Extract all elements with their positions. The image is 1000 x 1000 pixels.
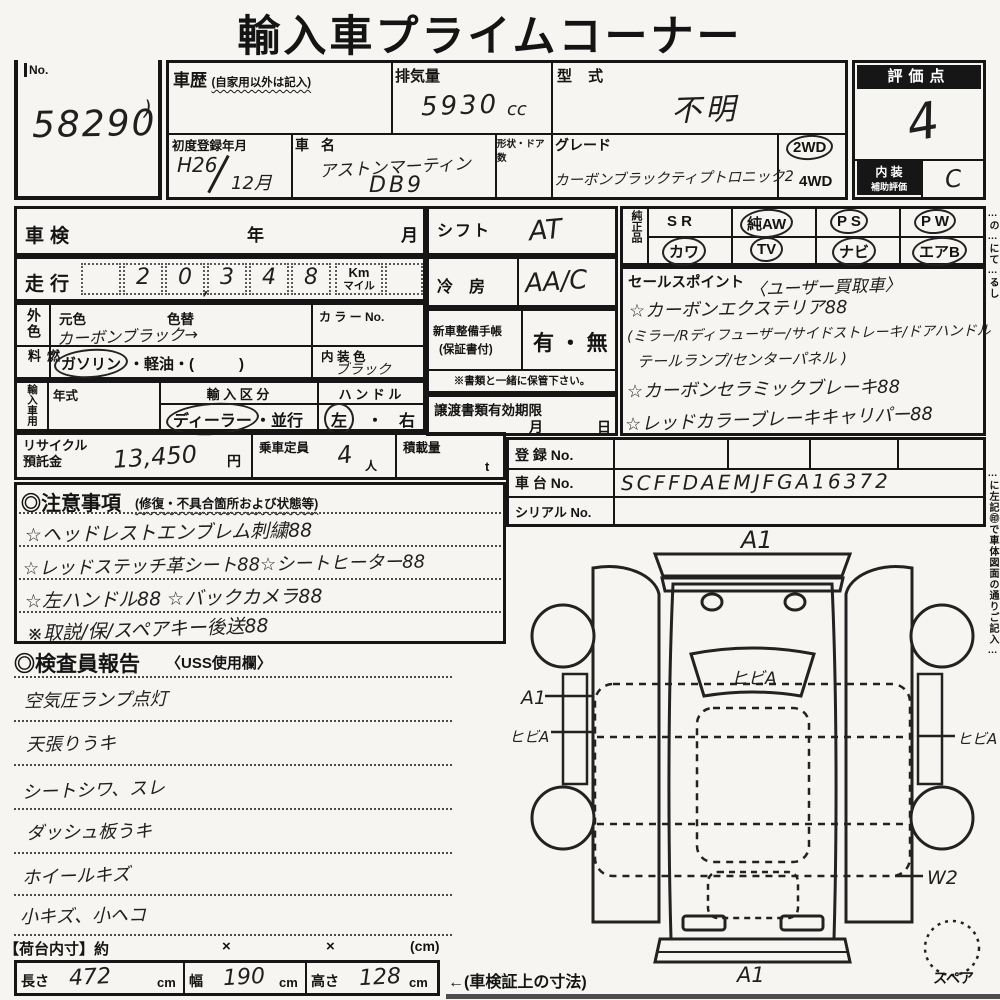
diagram-w2-mark: W2	[927, 867, 958, 889]
history-note: (自家用以外は記入)	[211, 77, 311, 89]
header-table: 車歴 (自家用以外は記入) 排気量 5930 cc 型 式 不明 初度登録年月 …	[166, 60, 848, 200]
shaken-row: 車検 年 月	[14, 206, 426, 256]
caution-subtitle: (修復・不具合箇所および状態等)	[135, 493, 318, 512]
height-value: 128	[358, 964, 401, 991]
spare-tire-label: スペア	[933, 970, 974, 986]
caution-text: ☆レッドステッチ革シート88☆シートヒーター88	[23, 547, 425, 580]
diagram-front-mark: A1	[739, 526, 773, 554]
handle-left: 左	[331, 407, 347, 431]
length-label: 長さ	[21, 971, 49, 991]
load-label: 積載量	[403, 437, 441, 456]
serial-no-label: シリアル No.	[515, 502, 591, 521]
cargo-row: 【荷台内寸】約 × × (cm)	[4, 938, 444, 960]
import-group-label: 輸入車用	[25, 384, 40, 426]
caution-text: ☆ヘッドレストエンブレム刺繍88	[25, 515, 313, 547]
inspector-line: ホイールキズ	[14, 854, 452, 896]
interior-score-value: C	[944, 164, 964, 194]
fuel-gasoline-option: ガソリン	[61, 353, 121, 374]
color-group-label: 外色	[24, 308, 44, 340]
shift-label: シフト	[437, 217, 491, 241]
book-label-1: 新車整備手帳	[433, 323, 502, 339]
recycle-row: リサイクル 預託金 13,450 円 乗車定員 4 人 積載量 t	[14, 432, 506, 480]
equip-airbag: エアB	[919, 241, 960, 262]
inspector-text: ダッシュ板うキ	[26, 817, 152, 845]
mileage-empty-cell	[385, 263, 423, 295]
diagram-left-a1-mark: A1	[519, 687, 546, 709]
mileage-digit-cell: 3	[207, 263, 247, 295]
auction-sheet: 輸入車プライムコーナー No. 58290 ) 車歴 (自家用以外は記入) 排気…	[0, 0, 1000, 1000]
caution-line: ☆ヘッドレストエンブレム刺繍88	[19, 514, 501, 547]
import-group-cell: 輸入車用	[17, 383, 49, 429]
caution-line: ☆左ハンドル88 ☆バックカメラ88	[19, 580, 501, 613]
width-value: 190	[222, 964, 265, 991]
shape-doors-label: 形状・ドア数	[497, 136, 551, 164]
scan-artifact-line	[446, 994, 1000, 999]
mileage-label: 走行	[25, 269, 75, 296]
id-row-divider	[509, 496, 983, 498]
color-no-cell: カ ラ ー No.	[311, 305, 425, 345]
capacity-unit: 人	[365, 457, 377, 474]
caution-line: ☆レッドステッチ革シート88☆シートヒーター88	[19, 547, 501, 580]
inspector-section: ◎検査員報告 〈USS使用欄〉 空気圧ランプ点灯 天張りうキ シートシワ、スレ …	[14, 648, 454, 940]
reg-no-divider	[809, 440, 811, 468]
first-reg-label: 初度登録年月	[172, 135, 247, 154]
transfer-box: 譲渡書類有効期限 月 日	[426, 394, 618, 436]
dim-divider	[183, 963, 185, 993]
displacement-cell: 排気量 5930 cc	[391, 63, 553, 135]
book-label-2: (保証書付)	[439, 341, 493, 357]
model-code-cell: 型 式 不明	[551, 63, 845, 135]
handle-right: 右	[399, 407, 415, 431]
caution-text: ☆左ハンドル88 ☆バックカメラ88	[25, 581, 323, 613]
equip-pw: P W	[921, 213, 949, 230]
equip-leather: カワ	[669, 241, 699, 262]
page-title: 輸入車プライムコーナー	[140, 2, 840, 56]
width-label: 幅	[189, 971, 203, 991]
serial-no-divider	[613, 496, 615, 524]
dimensions-row: 長さ 472 cm 幅 190 cm 高さ 128 cm	[14, 960, 440, 996]
sales-points-box: セールスポイント 〈ユーザー買取車〉 ☆カーボンエクステリア88 (ミラー/Rデ…	[620, 266, 986, 436]
load-cell: 積載量 t	[395, 435, 505, 477]
handle-dot: ・	[367, 407, 383, 431]
fuel-other-options: ・軽油・( )	[129, 353, 244, 374]
first-reg-month: 12月	[231, 169, 272, 195]
equip-navi: ナビ	[839, 241, 869, 262]
inspector-subtitle: 〈USS使用欄〉	[166, 652, 272, 673]
import-division-cell: 輸 入 区 分 ディーラー ・並行	[159, 383, 319, 429]
shaken-month-label: 月	[401, 221, 418, 246]
id-numbers-block: 登 録 No. 車 台 No. SCFFDAEMJFGA16372 シリアル N…	[506, 437, 986, 527]
interior-sub-label: 補助評価	[857, 180, 921, 193]
drive-cell: 2WD 4WD	[777, 133, 845, 197]
grade-value: カーボンブラックティプトロニック2	[554, 165, 794, 190]
score-header: 評価点	[857, 65, 981, 89]
handle-label: ハ ン ド ル	[317, 384, 423, 405]
score-value: 4	[902, 91, 943, 154]
mileage-digit: 8	[304, 265, 318, 290]
car-name-label: 車 名	[295, 135, 339, 155]
equipment-box: 純正品 S R 純AW P S P W カワ TV ナビ エアB	[620, 206, 986, 266]
transfer-month: 月	[529, 417, 543, 437]
shift-value: AT	[528, 214, 564, 248]
import-block: 輸入車用 年式 輸 入 区 分 ディーラー ・並行 ハ ン ド ル 左 ・ 右	[14, 380, 426, 432]
reg-no-label: 登 録 No.	[515, 445, 573, 465]
equipment-col-divider	[815, 209, 817, 263]
reg-no-divider	[897, 440, 899, 468]
book-value: 有 ・ 無	[533, 327, 608, 357]
color-no-label: カ ラ ー No.	[319, 308, 384, 325]
caution-text: ※取説/保/スペアキー後送88	[27, 611, 269, 646]
inspector-line: 空気圧ランプ点灯	[14, 678, 452, 722]
transfer-day: 日	[597, 417, 611, 437]
import-division-label: 輸 入 区 分	[159, 384, 317, 405]
history-cell: 車歴 (自家用以外は記入)	[169, 63, 393, 135]
book-divider-h	[429, 369, 615, 371]
height-label: 高さ	[311, 971, 339, 991]
interior-score-label-cell: 内 装 補助評価	[857, 161, 921, 195]
capacity-value: 4	[335, 440, 354, 470]
transfer-label: 譲渡書類有効期限	[434, 399, 542, 419]
auction-number-label: No.	[24, 63, 48, 77]
mileage-unit-mile: マイル	[337, 280, 381, 292]
equip-tv: TV	[757, 241, 776, 258]
mileage-digit-cell	[81, 263, 121, 295]
width-unit: cm	[279, 975, 298, 990]
caution-line: ※取説/保/スペアキー後送88	[19, 613, 501, 641]
inspector-line: ダッシュ板うキ	[14, 810, 452, 854]
shape-doors-cell: 形状・ドア数	[495, 133, 553, 197]
equip-sr: S R	[667, 213, 692, 230]
interior-label: 内 装	[857, 163, 921, 180]
equipment-col-divider	[731, 209, 733, 263]
reg-no-divider	[727, 440, 729, 468]
car-model-value: DB9	[369, 173, 424, 198]
chassis-no-divider	[613, 468, 615, 496]
equip-aw: 純AW	[747, 213, 786, 234]
interior-color-value: ブラック	[335, 359, 391, 379]
sales-line: テールランプ/センターパネル )	[637, 347, 847, 372]
auction-number-suffix: )	[144, 96, 152, 120]
inspector-text: ホイールキズ	[22, 860, 131, 890]
ac-value: AA/C	[524, 265, 588, 299]
model-code-label: 型 式	[557, 65, 609, 86]
mileage-digit-cell: 0	[165, 263, 205, 295]
first-reg-era: H26	[177, 153, 218, 177]
import-division-parallel: ・並行	[255, 407, 303, 431]
mileage-digit-cell: 8	[291, 263, 331, 295]
edge-note-bottom: …に左記㊞で車体図面の通りご記入…	[986, 468, 1000, 798]
cargo-label: 【荷台内寸】約	[4, 938, 109, 959]
recycle-label: リサイクル 預託金	[23, 438, 87, 470]
inspector-text: シートシワ、スレ	[22, 774, 166, 805]
mileage-digit: 0	[178, 265, 192, 290]
color-fuel-block: 外色 元色 色替 カーボンブラック→ カ ラ ー No. 燃料 ガソリン ・軽油…	[14, 302, 426, 380]
capacity-cell: 乗車定員 4 人	[251, 435, 397, 477]
mileage-digit: 3	[220, 265, 234, 290]
equipment-group-label: 純正品	[628, 210, 644, 243]
history-label: 車歴	[173, 66, 207, 91]
recycle-value: 13,450	[112, 440, 198, 474]
inspector-text: 天張りうキ	[26, 729, 116, 757]
dim-divider	[305, 963, 307, 993]
shaken-label: 車検	[25, 221, 75, 248]
displacement-unit: cc	[507, 99, 527, 120]
car-name-cell: 車 名 アストンマーティン DB9	[291, 133, 497, 197]
chassis-no-value: SCFFDAEMJFGA16372	[621, 469, 891, 495]
chassis-no-label: 車 台 No.	[515, 473, 573, 493]
handle-cell: ハ ン ド ル 左 ・ 右	[317, 383, 423, 429]
auction-number-box: No. 58290 )	[14, 60, 162, 200]
interior-color-cell: 内 装 色 ブラック	[311, 345, 425, 377]
recycle-label-1: リサイクル	[23, 438, 87, 454]
ac-box: 冷 房 AA/C	[426, 256, 618, 308]
height-unit: cm	[409, 975, 428, 990]
caution-box: ◎注意事項 (修復・不具合箇所および状態等) ☆ヘッドレストエンブレム刺繍88 …	[14, 482, 506, 644]
mileage-digit: 4	[262, 265, 276, 290]
sales-line: (ミラー/Rディフューザー/サイドストレーキ/ドアハンドル	[627, 320, 991, 346]
diagram-left-mark: ヒビA	[509, 728, 549, 746]
sales-line: ☆カーボンエクステリア88	[629, 293, 848, 323]
first-reg-cell: 初度登録年月 H26 12月	[169, 133, 293, 197]
service-book-box: 新車整備手帳 (保証書付) 有 ・ 無 ※書類と一緒に保管下さい。	[426, 308, 618, 394]
inspector-line: 天張りうキ	[14, 722, 452, 766]
inspector-line: 小キズ、小ヘコ	[14, 894, 452, 936]
import-division-dealer: ディーラー	[173, 407, 252, 431]
inspector-line: シートシワ、スレ	[14, 766, 452, 810]
inspector-text: 空気圧ランプ点灯	[24, 685, 168, 713]
recycle-unit: 円	[227, 451, 241, 471]
reg-no-divider	[613, 440, 615, 468]
inspector-text: 小キズ、小ヘコ	[20, 901, 146, 929]
shift-box: シフト AT	[426, 206, 618, 256]
mileage-digit-cell: 2	[123, 263, 163, 295]
book-divider-v	[521, 311, 523, 369]
import-year-cell: 年式	[47, 383, 161, 429]
diagram-windshield-mark: ヒビA	[731, 669, 777, 689]
auction-number-value: 58290	[32, 103, 157, 146]
ac-label: 冷 房	[437, 273, 485, 297]
length-value: 472	[68, 964, 111, 991]
inspector-title: ◎検査員報告	[14, 648, 140, 678]
equipment-col-divider	[899, 209, 901, 263]
mileage-unit-km: Km	[337, 266, 381, 280]
mileage-row: 走行 2 0 , 3 4 8 Km マイル	[14, 256, 426, 302]
cargo-x1: ×	[222, 938, 231, 955]
equipment-group-cell: 純正品	[623, 209, 649, 263]
sales-line: ☆レッドカラーブレーキキャリパー88	[625, 400, 934, 437]
car-damage-diagram: A1 ヒビA A1 ヒビA ヒビA W2 A1 スペア	[505, 524, 1000, 986]
sales-line: ☆カーボンセラミックブレーキ88	[627, 373, 900, 404]
model-code-value: 不明	[670, 84, 739, 130]
cargo-x2: ×	[326, 938, 335, 955]
diagram-rear-mark: A1	[735, 963, 765, 986]
import-year-label: 年式	[53, 385, 78, 404]
length-unit: cm	[157, 975, 176, 990]
cargo-unit: (cm)	[410, 938, 440, 954]
sales-label: セールスポイント	[628, 271, 744, 292]
drive-4wd: 4WD	[799, 173, 832, 190]
mileage-digit-cell: 4	[249, 263, 289, 295]
drive-2wd: 2WD	[793, 139, 826, 156]
interior-score-divider	[921, 159, 923, 197]
load-unit: t	[485, 459, 489, 474]
score-box: 評価点 4 内 装 補助評価 C	[852, 60, 986, 200]
edge-note-top: …の…にて…るし	[986, 208, 1000, 458]
recycle-label-2: 預託金	[23, 454, 87, 470]
mileage-unit-cell: Km マイル	[335, 263, 383, 295]
ac-divider	[517, 259, 519, 305]
displacement-label: 排気量	[395, 65, 440, 86]
equip-ps: P S	[837, 213, 861, 230]
displacement-value: 5930	[421, 90, 500, 123]
shaken-year-label: 年	[247, 221, 264, 246]
grade-label: グレード	[555, 135, 611, 155]
mileage-digit: 2	[136, 265, 150, 290]
grade-cell: グレード カーボンブラックティプトロニック2	[551, 133, 779, 197]
capacity-label: 乗車定員	[259, 437, 309, 456]
book-note: ※書類と一緒に保管下さい。	[429, 373, 615, 388]
